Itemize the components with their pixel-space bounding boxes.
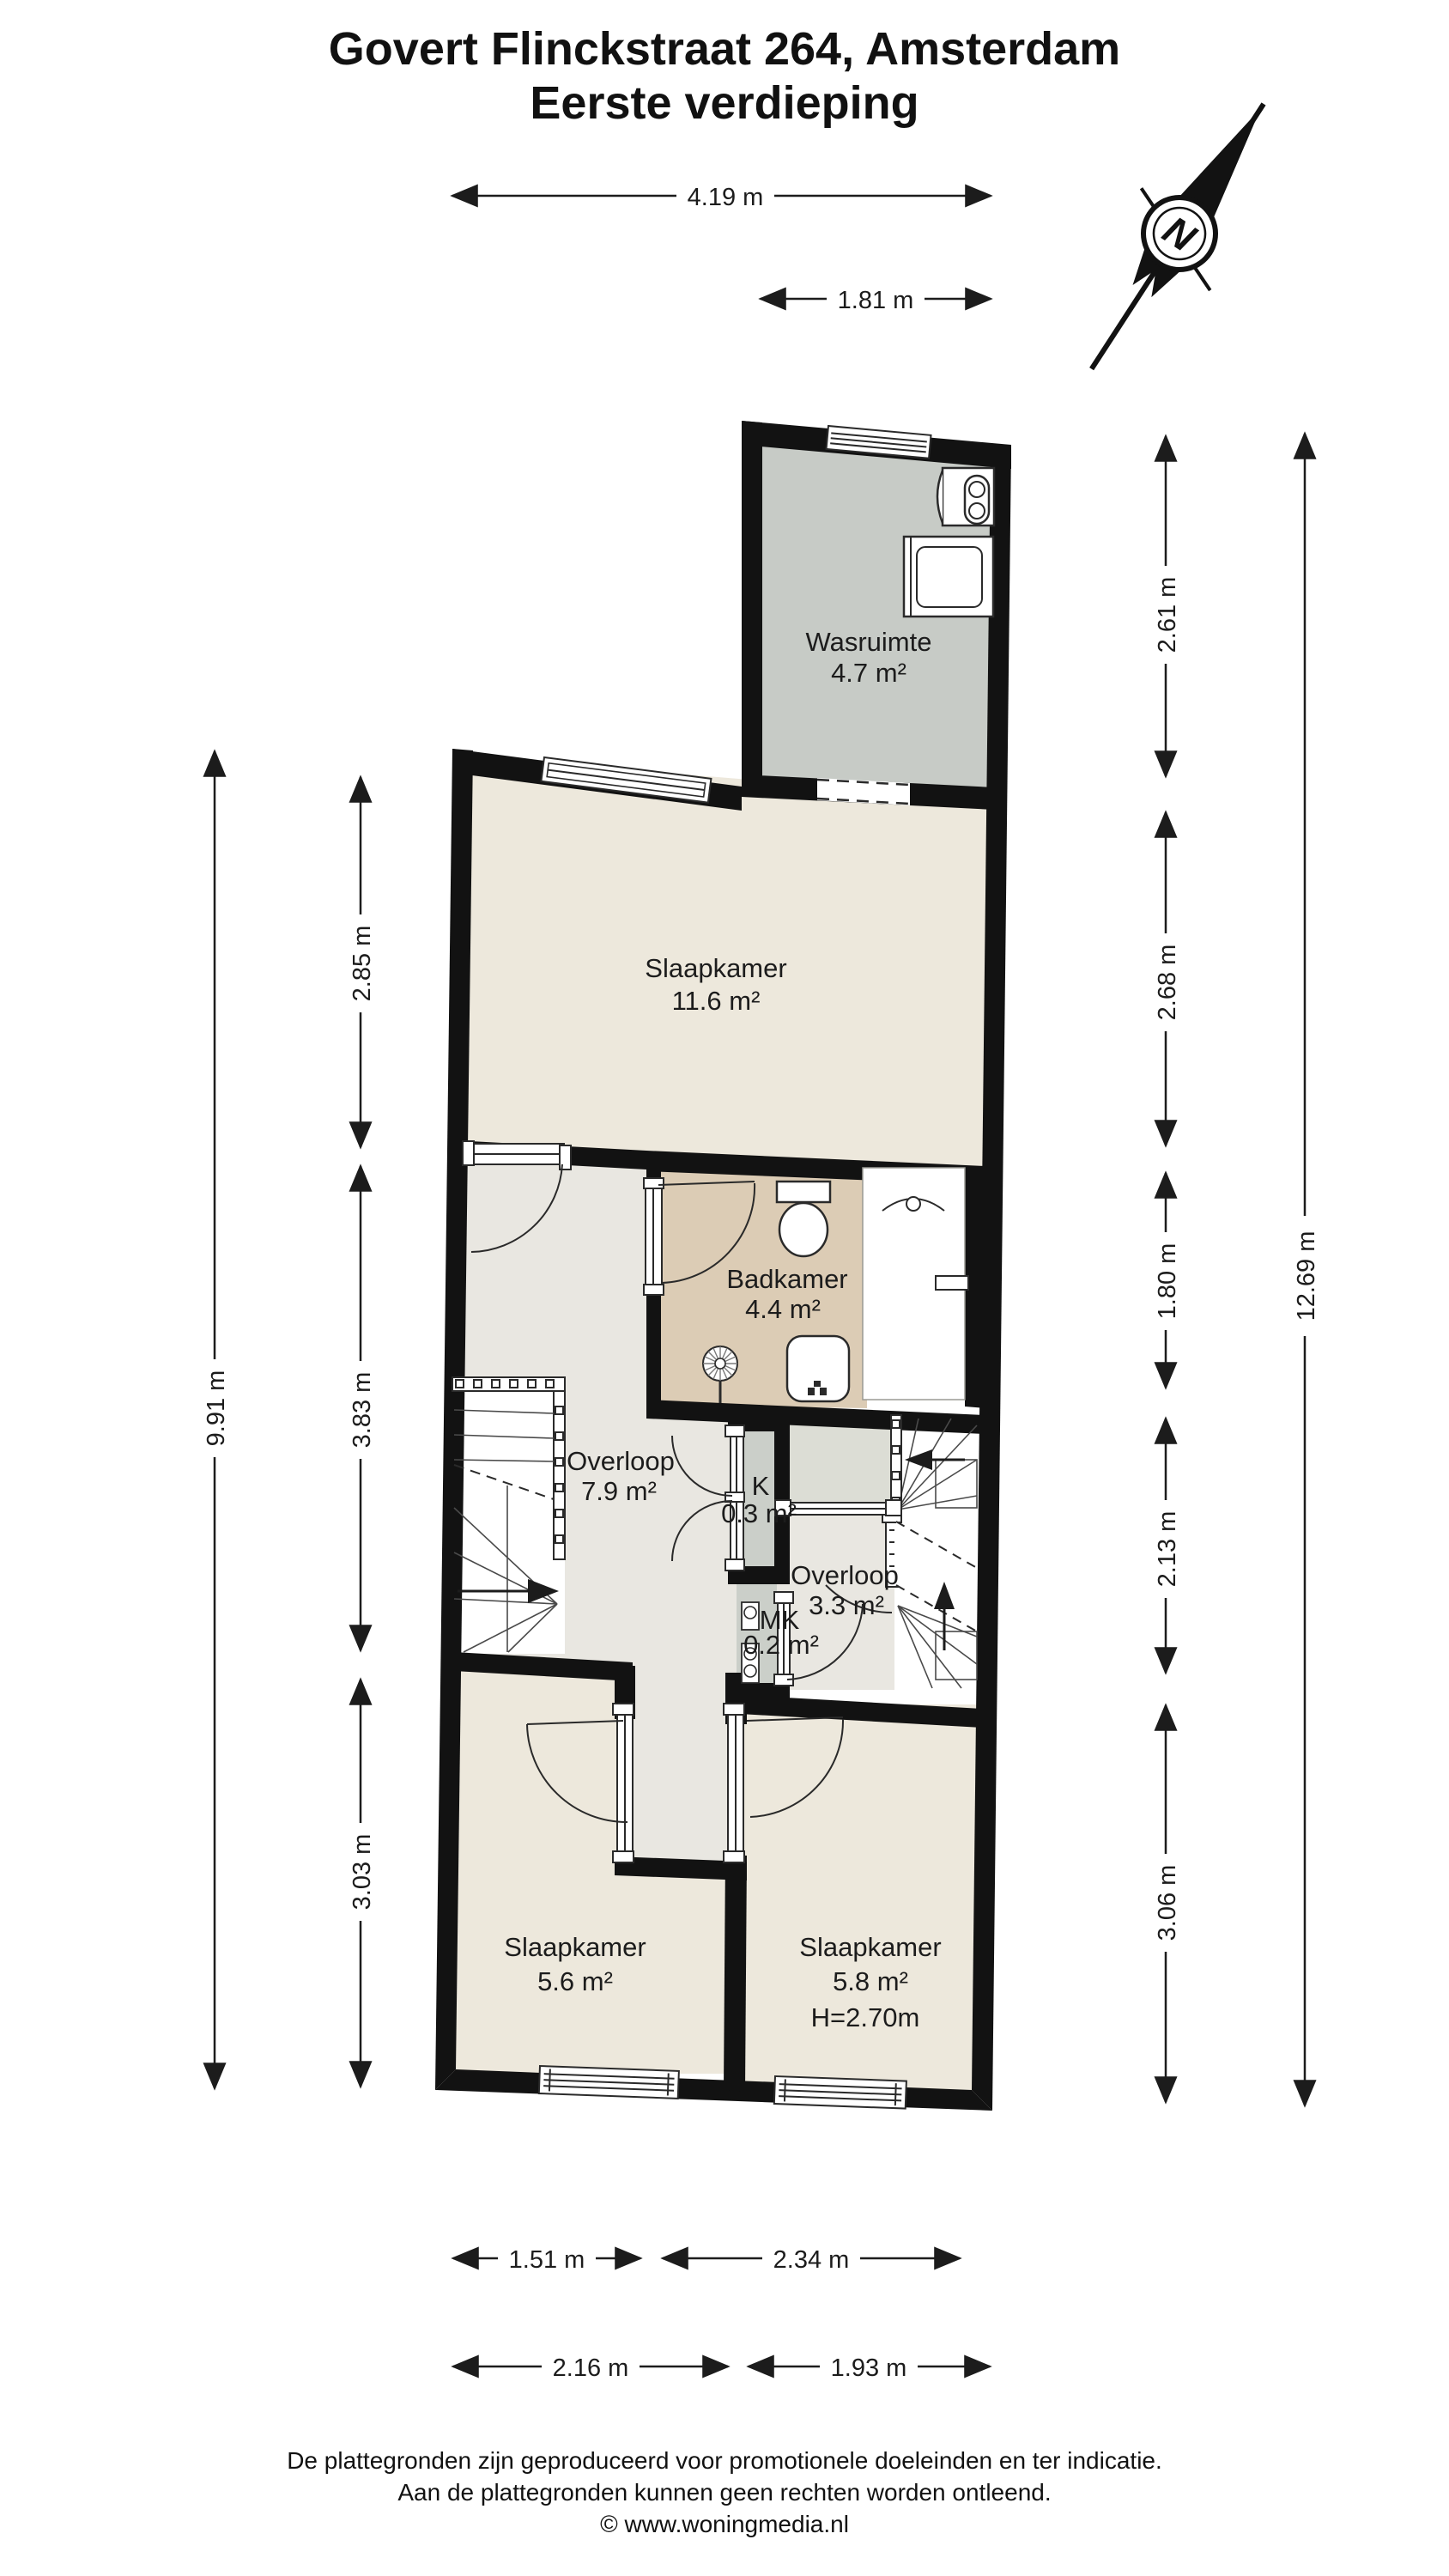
svg-text:9.91 m: 9.91 m	[203, 1370, 230, 1447]
label-kast-name: K	[752, 1471, 770, 1501]
svg-text:3.06 m: 3.06 m	[1154, 1865, 1181, 1941]
label-overloop2-area: 3.3 m²	[809, 1590, 884, 1620]
bathtub-icon	[863, 1168, 968, 1400]
footer-disclaimer: De plattegronden zijn geproduceerd voor …	[0, 2445, 1449, 2541]
label-badkamer-name: Badkamer	[726, 1264, 847, 1294]
svg-text:4.19 m: 4.19 m	[688, 184, 764, 211]
label-slaapkamer-boven-area: 11.6 m²	[672, 986, 761, 1016]
label-overloop2-name: Overloop	[791, 1560, 899, 1590]
dim-right-306: 3.06 m	[1150, 1705, 1181, 2102]
svg-text:2.16 m: 2.16 m	[553, 2354, 629, 2382]
dim-bottom-193: 1.93 m	[749, 2351, 990, 2382]
dim-left-383: 3.83 m	[345, 1166, 376, 1650]
label-meterkast-area: 0.2 m²	[743, 1630, 819, 1660]
label-slaapkamer-links-area: 5.6 m²	[537, 1966, 613, 1996]
dim-bottom-151: 1.51 m	[453, 2243, 640, 2274]
floor-slaapkamer-rechts	[740, 1704, 979, 2093]
svg-text:2.61 m: 2.61 m	[1154, 577, 1181, 653]
floor-corridor	[628, 1666, 740, 1865]
svg-text:2.68 m: 2.68 m	[1154, 945, 1181, 1021]
svg-text:2.85 m: 2.85 m	[349, 926, 376, 1002]
washing-machine-icon	[904, 537, 993, 617]
dim-right-268: 2.68 m	[1150, 812, 1181, 1145]
footer-line-3: © www.woningmedia.nl	[0, 2509, 1449, 2541]
dim-top-1: 4.19 m	[452, 180, 991, 211]
dim-bottom-234: 2.34 m	[663, 2243, 960, 2274]
svg-text:2.34 m: 2.34 m	[773, 2246, 850, 2274]
label-overloop-area: 7.9 m²	[581, 1476, 657, 1506]
bath-niche	[936, 1276, 968, 1290]
label-badkamer-area: 4.4 m²	[745, 1294, 821, 1324]
dim-right-213: 2.13 m	[1150, 1419, 1181, 1673]
footer-line-1: De plattegronden zijn geproduceerd voor …	[0, 2445, 1449, 2477]
floor-stair-landing	[777, 1415, 897, 1511]
label-wasruimte-area: 4.7 m²	[831, 658, 906, 688]
label-wasruimte-name: Wasruimte	[806, 627, 932, 657]
svg-text:1.51 m: 1.51 m	[509, 2246, 585, 2274]
label-kast-area: 0.3 m²	[721, 1498, 797, 1528]
label-slaapkamer-boven-name: Slaapkamer	[645, 953, 786, 983]
floorplan-page: Govert Flinckstraat 264, Amsterdam Eerst…	[0, 0, 1449, 2576]
label-slaapkamer-rechts-name: Slaapkamer	[799, 1932, 941, 1962]
svg-text:2.13 m: 2.13 m	[1154, 1511, 1181, 1588]
floor-plan-svg: Wasruimte 4.7 m² Slaapkamer 11.6 m² Badk…	[0, 0, 1449, 2576]
dim-right-180: 1.80 m	[1150, 1173, 1181, 1388]
sink-icon	[787, 1336, 849, 1401]
svg-text:3.83 m: 3.83 m	[349, 1372, 376, 1449]
dim-right-1269: 12.69 m	[1289, 434, 1320, 2105]
dim-top-2: 1.81 m	[761, 283, 991, 314]
svg-text:1.80 m: 1.80 m	[1154, 1243, 1181, 1320]
svg-text:12.69 m: 12.69 m	[1293, 1231, 1320, 1321]
footer-line-2: Aan de plattegronden kunnen geen rechten…	[0, 2477, 1449, 2509]
dim-left-303: 3.03 m	[345, 1680, 376, 2087]
wall-annex-left	[742, 421, 762, 780]
window-slaapkamer-links	[539, 2066, 679, 2099]
wall-between-bedrooms	[724, 1855, 747, 2092]
toilet-icon	[937, 468, 994, 526]
label-slaapkamer-rechts-height: H=2.70m	[811, 2002, 920, 2032]
svg-text:1.93 m: 1.93 m	[831, 2354, 907, 2382]
dim-left-991: 9.91 m	[199, 751, 230, 2088]
dim-left-285: 2.85 m	[345, 777, 376, 1147]
dim-bottom-216: 2.16 m	[453, 2351, 728, 2382]
dim-right-261: 2.61 m	[1150, 436, 1181, 776]
svg-text:1.81 m: 1.81 m	[838, 287, 914, 314]
window-slaapkamer-rechts	[774, 2076, 906, 2109]
compass-icon: N	[1044, 73, 1311, 400]
label-slaapkamer-links-name: Slaapkamer	[504, 1932, 646, 1962]
wc-icon	[777, 1182, 830, 1256]
label-slaapkamer-rechts-area: 5.8 m²	[833, 1966, 908, 1996]
label-overloop-name: Overloop	[567, 1446, 675, 1476]
svg-text:3.03 m: 3.03 m	[349, 1834, 376, 1911]
